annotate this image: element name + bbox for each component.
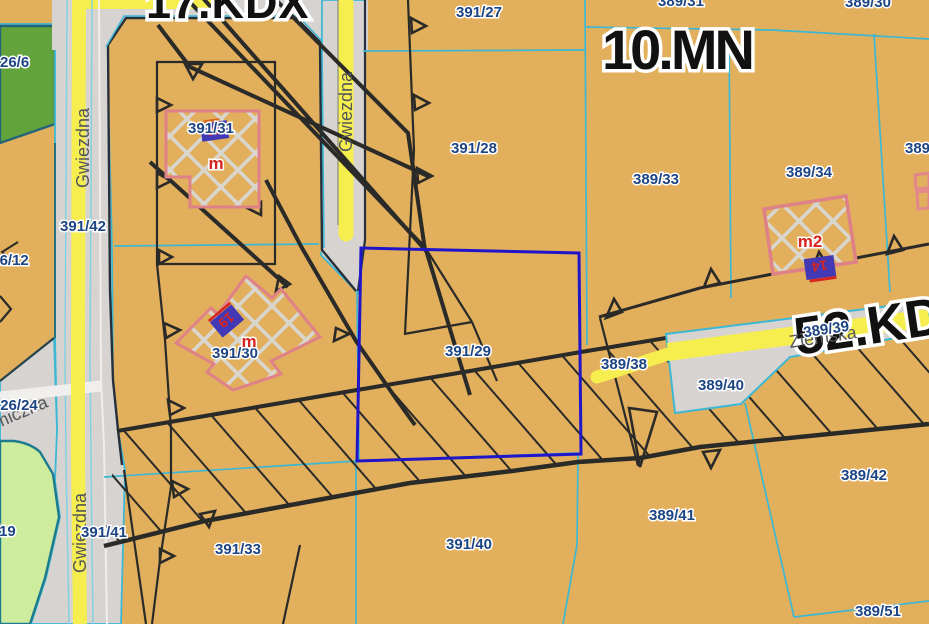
- svg-text:26/19: 26/19: [0, 523, 16, 540]
- svg-text:389/34: 389/34: [786, 164, 833, 181]
- svg-text:391/33: 391/33: [215, 541, 261, 558]
- svg-text:m2: m2: [798, 232, 823, 251]
- svg-text:389/38: 389/38: [601, 356, 647, 373]
- svg-text:389/40: 389/40: [698, 377, 744, 394]
- svg-text:10.MN: 10.MN: [602, 18, 752, 81]
- svg-text:389/51: 389/51: [855, 603, 901, 620]
- svg-text:391/28: 391/28: [451, 140, 497, 157]
- svg-text:389/41: 389/41: [649, 507, 695, 524]
- svg-text:26/6: 26/6: [0, 54, 29, 71]
- svg-text:391/31: 391/31: [188, 120, 234, 137]
- svg-text:391/40: 391/40: [446, 536, 492, 553]
- svg-text:391/42: 391/42: [60, 218, 106, 235]
- svg-text:m: m: [241, 332, 256, 351]
- svg-text:391/29: 391/29: [445, 343, 491, 360]
- svg-text:389/30: 389/30: [845, 0, 891, 11]
- svg-text:26/12: 26/12: [0, 252, 29, 269]
- svg-text:26/24: 26/24: [0, 397, 38, 414]
- svg-text:391/41: 391/41: [81, 524, 127, 541]
- svg-text:14: 14: [811, 257, 829, 275]
- svg-text:389/42: 389/42: [841, 467, 887, 484]
- svg-text:Gwiezdna: Gwiezdna: [73, 107, 93, 188]
- svg-text:389/33: 389/33: [633, 171, 679, 188]
- svg-text:m: m: [208, 154, 223, 173]
- svg-text:17.KDX: 17.KDX: [146, 0, 310, 28]
- svg-text:391/27: 391/27: [456, 4, 502, 21]
- svg-text:389/31: 389/31: [658, 0, 704, 10]
- svg-text:389/4: 389/4: [905, 140, 929, 157]
- svg-text:Gwiezdna: Gwiezdna: [336, 71, 356, 152]
